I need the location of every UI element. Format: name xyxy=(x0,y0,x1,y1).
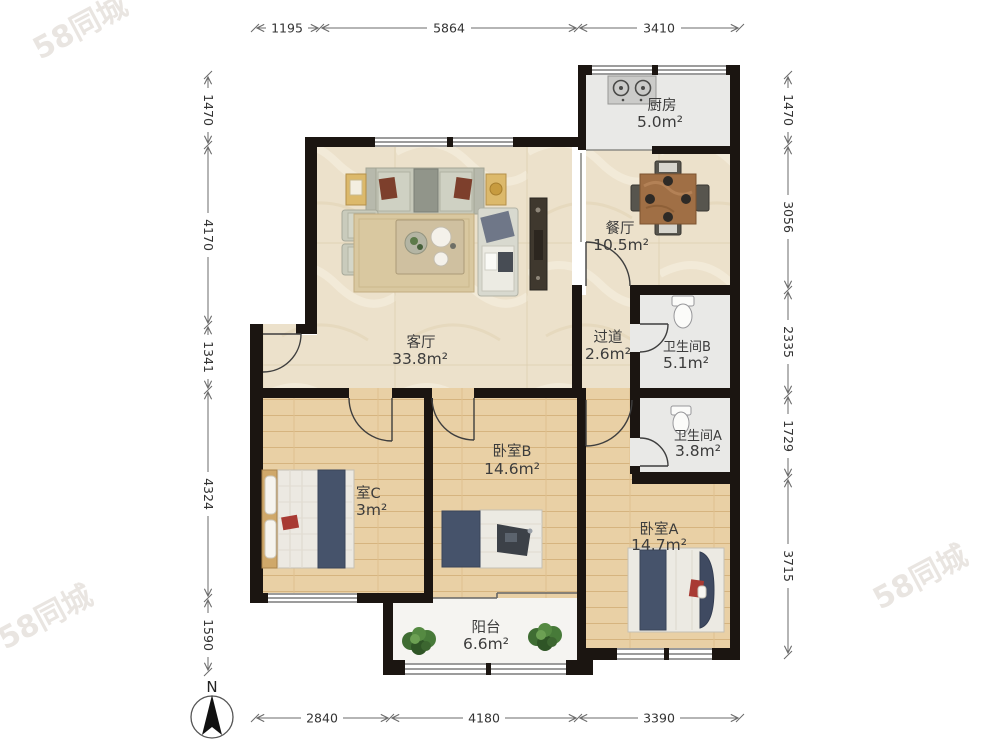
kitchen-label: 厨房 xyxy=(648,97,677,114)
bed-c xyxy=(262,470,354,568)
living-area: 33.8m² xyxy=(392,350,448,368)
coffee-table xyxy=(396,220,464,274)
svg-text:4180: 4180 xyxy=(468,711,500,726)
chaise-chair xyxy=(478,208,518,296)
kitchen-window xyxy=(592,65,726,75)
bedroom-c-window xyxy=(268,593,357,603)
dim-left: 1470 4170 1341 4324 1590 xyxy=(201,71,216,676)
tv-cabinet xyxy=(530,198,547,290)
hallway-area: 2.6m² xyxy=(585,345,631,363)
bedroom-b-label: 卧室B xyxy=(493,443,532,460)
hallway-label: 过道 xyxy=(594,329,623,346)
svg-text:58同城: 58同城 xyxy=(27,0,133,67)
dining-label: 餐厅 xyxy=(606,220,635,237)
svg-text:1195: 1195 xyxy=(271,21,303,36)
living-window xyxy=(375,137,513,147)
svg-text:5864: 5864 xyxy=(433,21,465,36)
dining-area: 10.5m² xyxy=(593,236,649,254)
north-label: N xyxy=(206,678,217,696)
svg-text:58同城: 58同城 xyxy=(867,538,973,617)
floor-plan-canvas: 58同城 58同城 58同城 xyxy=(0,0,1000,750)
balcony-area: 6.6m² xyxy=(463,635,509,653)
living-label: 客厅 xyxy=(407,334,436,351)
bedroom-c-label: 室C xyxy=(356,485,381,502)
svg-text:4170: 4170 xyxy=(201,219,216,251)
svg-text:2840: 2840 xyxy=(306,711,338,726)
bathroom-a-area: 3.8m² xyxy=(675,442,721,460)
bedroom-b-area: 14.6m² xyxy=(484,460,540,478)
svg-text:2335: 2335 xyxy=(781,326,796,358)
bedroom-a-window xyxy=(617,648,712,660)
kitchen-area: 5.0m² xyxy=(637,113,683,131)
svg-text:1729: 1729 xyxy=(781,420,796,452)
svg-text:58同城: 58同城 xyxy=(0,578,99,657)
svg-text:3390: 3390 xyxy=(643,711,675,726)
svg-text:3715: 3715 xyxy=(781,550,796,582)
svg-text:4324: 4324 xyxy=(201,478,216,510)
north-arrow-icon xyxy=(202,695,222,735)
floor-plan-page: 58同城 58同城 58同城 xyxy=(0,0,1000,750)
svg-text:3410: 3410 xyxy=(643,21,675,36)
bedroom-c-area: 3m² xyxy=(356,501,387,519)
dim-top: 1195 5864 3410 xyxy=(251,21,744,36)
bathroom-b-label: 卫生间B xyxy=(663,340,711,355)
balcony-label: 阳台 xyxy=(472,619,501,636)
sofa xyxy=(366,168,484,214)
bed-b xyxy=(442,510,542,568)
balcony-railing xyxy=(405,663,566,675)
dim-bottom: 2840 4180 3390 xyxy=(251,711,744,726)
svg-text:1470: 1470 xyxy=(781,94,796,126)
svg-text:1341: 1341 xyxy=(201,341,216,373)
svg-text:3056: 3056 xyxy=(781,201,796,233)
bed-a xyxy=(628,548,724,632)
svg-text:1470: 1470 xyxy=(201,94,216,126)
dim-right: 1470 3056 2335 1729 3715 xyxy=(781,71,796,659)
svg-text:1590: 1590 xyxy=(201,619,216,651)
bathroom-b-area: 5.1m² xyxy=(663,354,709,372)
north-indicator: N xyxy=(191,678,233,738)
bedroom-a-area: 14.7m² xyxy=(631,536,687,554)
